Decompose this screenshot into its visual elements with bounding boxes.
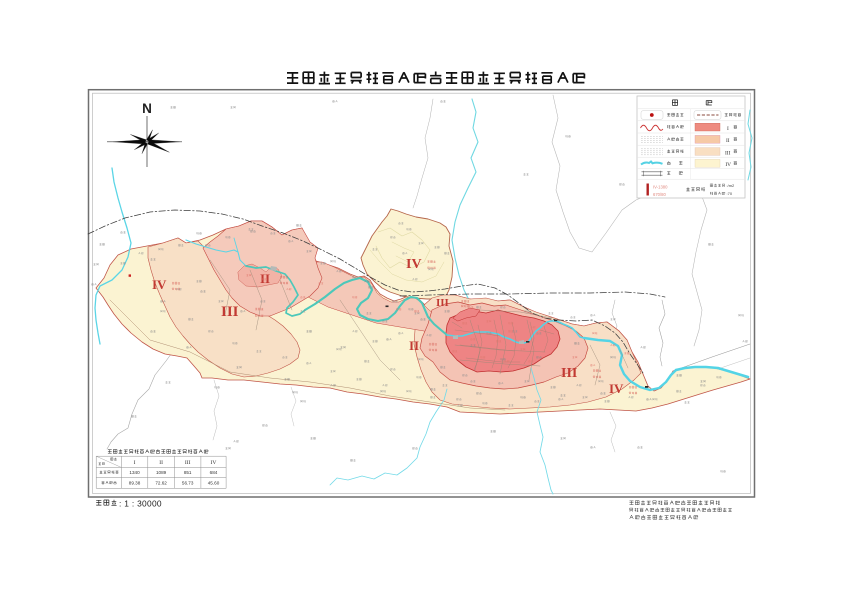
svg-text:670/80: 670/80	[653, 192, 666, 197]
svg-text:1340: 1340	[129, 470, 140, 475]
svg-text:45.60: 45.60	[208, 481, 220, 486]
svg-text:IV-1380: IV-1380	[653, 185, 668, 190]
svg-text:N: N	[142, 101, 152, 116]
svg-text:II: II	[726, 138, 730, 144]
svg-text:III: III	[561, 366, 577, 381]
svg-text::70: :70	[727, 191, 733, 196]
svg-text:IV: IV	[725, 162, 731, 168]
svg-text:851: 851	[184, 470, 192, 475]
svg-text:: 1 : 30000: : 1 : 30000	[119, 499, 162, 509]
svg-text:III: III	[436, 297, 449, 309]
svg-text:I: I	[134, 460, 136, 466]
svg-text:II: II	[159, 460, 163, 466]
svg-text:I: I	[727, 126, 729, 132]
svg-text:IV: IV	[152, 277, 167, 292]
svg-text:684: 684	[210, 470, 218, 475]
svg-text:1089: 1089	[156, 470, 167, 475]
svg-text:89.38: 89.38	[129, 481, 141, 486]
svg-text:III: III	[221, 304, 239, 320]
svg-text:II: II	[409, 338, 419, 353]
svg-text:III: III	[185, 460, 191, 466]
svg-text::/m2: :/m2	[727, 183, 736, 188]
svg-text:IV: IV	[609, 381, 624, 396]
svg-text:56.73: 56.73	[182, 481, 194, 486]
svg-text:72.62: 72.62	[155, 481, 167, 486]
svg-text:II: II	[260, 271, 270, 286]
svg-text:IV: IV	[211, 460, 217, 466]
svg-text:III: III	[725, 150, 731, 156]
svg-text:IV: IV	[406, 257, 422, 272]
